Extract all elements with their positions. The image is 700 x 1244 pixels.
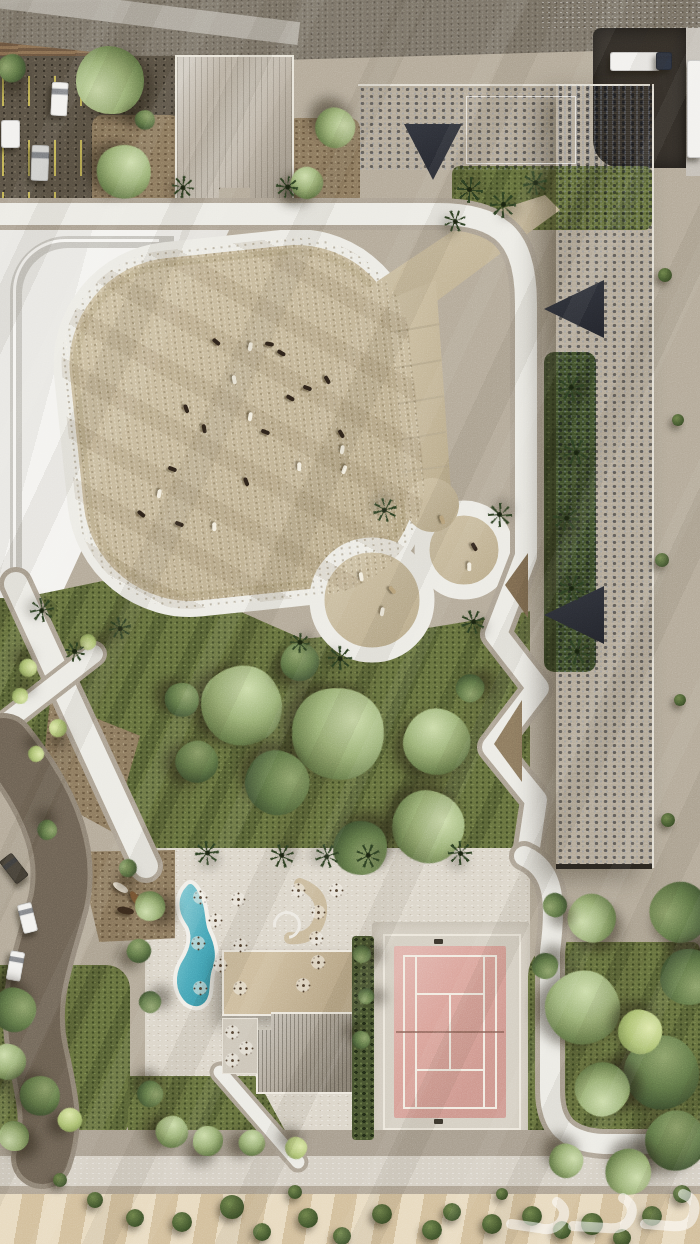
tree <box>54 1104 87 1137</box>
tree <box>544 1139 587 1182</box>
tree <box>11 687 29 705</box>
palm-tree <box>167 171 198 202</box>
tree <box>167 732 226 791</box>
palm-tree <box>190 836 223 869</box>
tree <box>116 856 140 880</box>
shrub <box>443 1203 461 1221</box>
palm-tree <box>489 191 518 220</box>
shrub <box>522 1206 542 1226</box>
tree <box>0 982 42 1037</box>
tree <box>45 715 70 740</box>
palm-tree <box>559 435 592 468</box>
shrub <box>482 1214 502 1234</box>
tree <box>135 987 164 1016</box>
tree <box>234 1125 271 1162</box>
tree <box>394 699 481 786</box>
tree <box>658 947 700 1008</box>
tree <box>0 48 32 87</box>
palm-tree <box>457 177 483 203</box>
shrub <box>172 1212 192 1232</box>
palm-tree <box>554 371 587 404</box>
palm-tree <box>369 494 401 526</box>
palm-tree <box>457 606 488 637</box>
site-plan-render <box>0 0 700 1244</box>
shrub <box>53 1173 67 1187</box>
shrub <box>581 1213 603 1235</box>
shrub <box>496 1188 508 1200</box>
tree <box>132 1076 168 1112</box>
shrub <box>220 1195 244 1219</box>
tree <box>351 1030 371 1050</box>
tree <box>540 890 571 921</box>
tree <box>15 1071 65 1121</box>
vegetation-layer <box>0 0 700 1244</box>
shrub <box>673 1185 691 1203</box>
shrub <box>87 1192 103 1208</box>
tree <box>131 887 169 925</box>
shrub <box>672 414 684 426</box>
tree <box>282 1134 310 1162</box>
shrub <box>613 1229 631 1244</box>
tree <box>309 102 361 154</box>
tree <box>349 941 374 966</box>
shrub <box>126 1209 144 1227</box>
tree <box>161 679 203 721</box>
shrub <box>674 694 686 706</box>
tree <box>355 985 377 1007</box>
tree <box>192 1125 224 1157</box>
shrub <box>422 1220 442 1240</box>
tree <box>531 952 560 981</box>
tree <box>638 870 700 953</box>
palm-tree <box>441 207 468 234</box>
palm-tree <box>266 840 297 871</box>
tree <box>149 1109 194 1154</box>
palm-tree <box>487 502 513 528</box>
tree <box>561 887 623 949</box>
tree <box>25 743 48 766</box>
shrub <box>658 268 672 282</box>
tree <box>124 936 155 967</box>
palm-tree <box>559 634 595 670</box>
tree <box>76 46 144 114</box>
shrub <box>372 1204 392 1224</box>
tree <box>0 1041 29 1083</box>
palm-tree <box>519 167 551 199</box>
shrub <box>298 1208 318 1228</box>
shrub <box>655 553 669 567</box>
palm-tree <box>105 613 135 643</box>
shrub <box>253 1223 271 1241</box>
tree <box>16 656 39 679</box>
tree <box>90 138 158 206</box>
tree <box>0 1121 29 1151</box>
shrub <box>288 1185 302 1199</box>
shrub <box>333 1227 351 1244</box>
tree <box>451 669 488 706</box>
palm-tree <box>556 572 588 604</box>
palm-tree <box>27 595 56 624</box>
tree <box>33 816 61 844</box>
tree <box>132 107 159 134</box>
palm-tree <box>548 500 585 537</box>
shrub <box>642 1206 662 1226</box>
shrub <box>661 813 675 827</box>
palm-tree <box>323 641 357 675</box>
shrub <box>553 1221 571 1239</box>
palm-tree <box>447 840 474 867</box>
